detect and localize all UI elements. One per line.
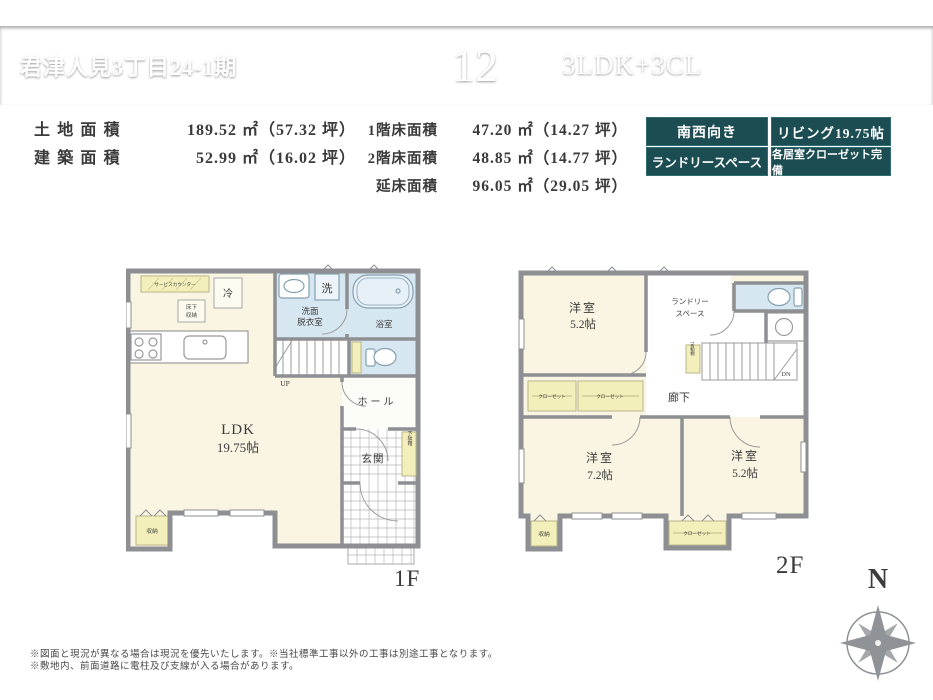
- badge-label: 各居室クローゼット完備: [772, 146, 890, 178]
- area-label: 2階床面積: [352, 147, 438, 168]
- washer-label: 洗: [322, 282, 333, 295]
- rooms-2f: [521, 273, 806, 549]
- project-title: 君津人見3丁目24-1期: [20, 50, 237, 82]
- laundry-label-2: スペース: [675, 309, 704, 318]
- washroom-label-2: 脱衣室: [297, 317, 323, 327]
- storage-1f-label: 収納: [146, 527, 158, 535]
- up-label: UP: [280, 379, 290, 388]
- room-c-size: 5.2帖: [732, 466, 758, 480]
- floor-plan-1f: LDK 19.75帖 サービスカウンター 冷 床下 収納 洗 洗面 脱衣室 浴室…: [126, 264, 426, 576]
- area-label: 建築面積: [34, 144, 138, 168]
- area-row-floor2: 2階床面積 48.85 ㎡（14.77 坪）: [352, 146, 628, 168]
- area-row-land: 土地面積 189.52 ㎡（57.32 坪）: [34, 117, 356, 139]
- header-band: 君津人見3丁目24-1期 （13棟現場） 12 号棟 3LDK+3CL: [0, 26, 933, 105]
- footnotes: ※図面と現況が異なる場合は現況を優先いたします。※当社標準工事以外の工事は別途工…: [30, 649, 498, 673]
- project-title-group: 君津人見3丁目24-1期 （13棟現場）: [20, 26, 309, 105]
- area-value: 48.85 ㎡（14.77 坪）: [438, 146, 628, 168]
- badge-closet: 各居室クローゼット完備: [771, 147, 891, 176]
- floor-plan-type: 3LDK+3CL: [562, 50, 702, 81]
- area-value: 52.99 ㎡（16.02 坪）: [138, 144, 356, 168]
- ldk-size-label: 19.75帖: [217, 440, 259, 455]
- shoe-cabinet-label: 下駄箱: [407, 431, 413, 447]
- footnote-line: ※敷地内、前面道路に電柱及び支線が入る場合があります。: [30, 661, 498, 673]
- floor-2f-tag: 2F: [776, 552, 804, 580]
- washroom-label-1: 洗面: [301, 306, 319, 316]
- compass-rose: N: [826, 560, 930, 690]
- area-value: 189.52 ㎡（57.32 坪）: [138, 116, 356, 140]
- area-row-building: 建築面積 52.99 ㎡（16.02 坪）: [34, 145, 356, 167]
- fixtures-2f: [766, 288, 806, 341]
- floor-storage-label-1: 床下: [186, 303, 198, 311]
- badge-facing: 南西向き: [646, 117, 768, 146]
- closet-a-label: クローゼット: [538, 393, 566, 400]
- area-row-total: 延床面積 96.05 ㎡（29.05 坪）: [352, 174, 628, 196]
- hall-label: ホール: [358, 396, 397, 408]
- room-b-label: 洋室: [586, 450, 614, 465]
- service-counter-label: サービスカウンター: [154, 281, 196, 288]
- storage-2f-label: 収納: [538, 530, 550, 538]
- laundry-label-1: ランドリー: [671, 297, 709, 306]
- closet-b-label: クローゼット: [596, 393, 624, 400]
- room-a-label: 洋室: [569, 300, 597, 315]
- badge-label: ランドリースペース: [652, 152, 762, 171]
- compass: N: [826, 560, 930, 690]
- room-c-label: 洋室: [731, 448, 759, 463]
- badge-living: リビング19.75帖: [771, 117, 891, 146]
- closet-c-label: クローゼット: [683, 530, 711, 537]
- badge-label: リビング19.75帖: [777, 122, 885, 142]
- area-value: 96.05 ㎡（29.05 坪）: [438, 174, 628, 196]
- area-value: 47.20 ㎡（14.27 坪）: [438, 118, 628, 140]
- area-label: 土地面積: [34, 116, 138, 140]
- room-b-size: 7.2帖: [587, 468, 613, 482]
- unit-number: 12: [452, 43, 498, 89]
- kitchen-counter: [128, 331, 248, 363]
- room-a-size: 5.2帖: [570, 317, 596, 331]
- unit-label: 号棟: [500, 67, 528, 87]
- fridge-label: 冷: [223, 287, 233, 300]
- floor-storage-label-2: 収納: [186, 311, 198, 319]
- footnote-line: ※図面と現況が異なる場合は現況を優先いたします。※当社標準工事以外の工事は別途工…: [30, 649, 498, 661]
- movable-shelf-label: 可動棚: [690, 342, 696, 357]
- area-label: 延床面積: [352, 175, 438, 196]
- badge-laundry: ランドリースペース: [646, 147, 768, 176]
- area-row-floor1: 1階床面積 47.20 ㎡（14.27 坪）: [352, 118, 628, 140]
- project-note: （13棟現場）: [243, 61, 309, 77]
- ldk-label: LDK: [221, 422, 255, 438]
- bathroom-label: 浴室: [375, 319, 393, 329]
- unit-group: 12 号棟 3LDK+3CL: [452, 26, 702, 105]
- down-label: DN: [781, 371, 791, 378]
- area-label: 1階床面積: [352, 119, 438, 140]
- badge-label: 南西向き: [677, 122, 737, 142]
- floor-1f-tag: 1F: [394, 566, 420, 592]
- compass-star: [838, 603, 917, 682]
- hallway-label: 廊下: [668, 390, 690, 404]
- entrance-label: 玄関: [362, 452, 385, 465]
- compass-north-label: N: [868, 564, 888, 595]
- floor-plan-2f: 洋室 5.2帖 ランドリー スペース 可動棚 DN 廊下 洋室 7.2帖 洋室 …: [512, 264, 812, 584]
